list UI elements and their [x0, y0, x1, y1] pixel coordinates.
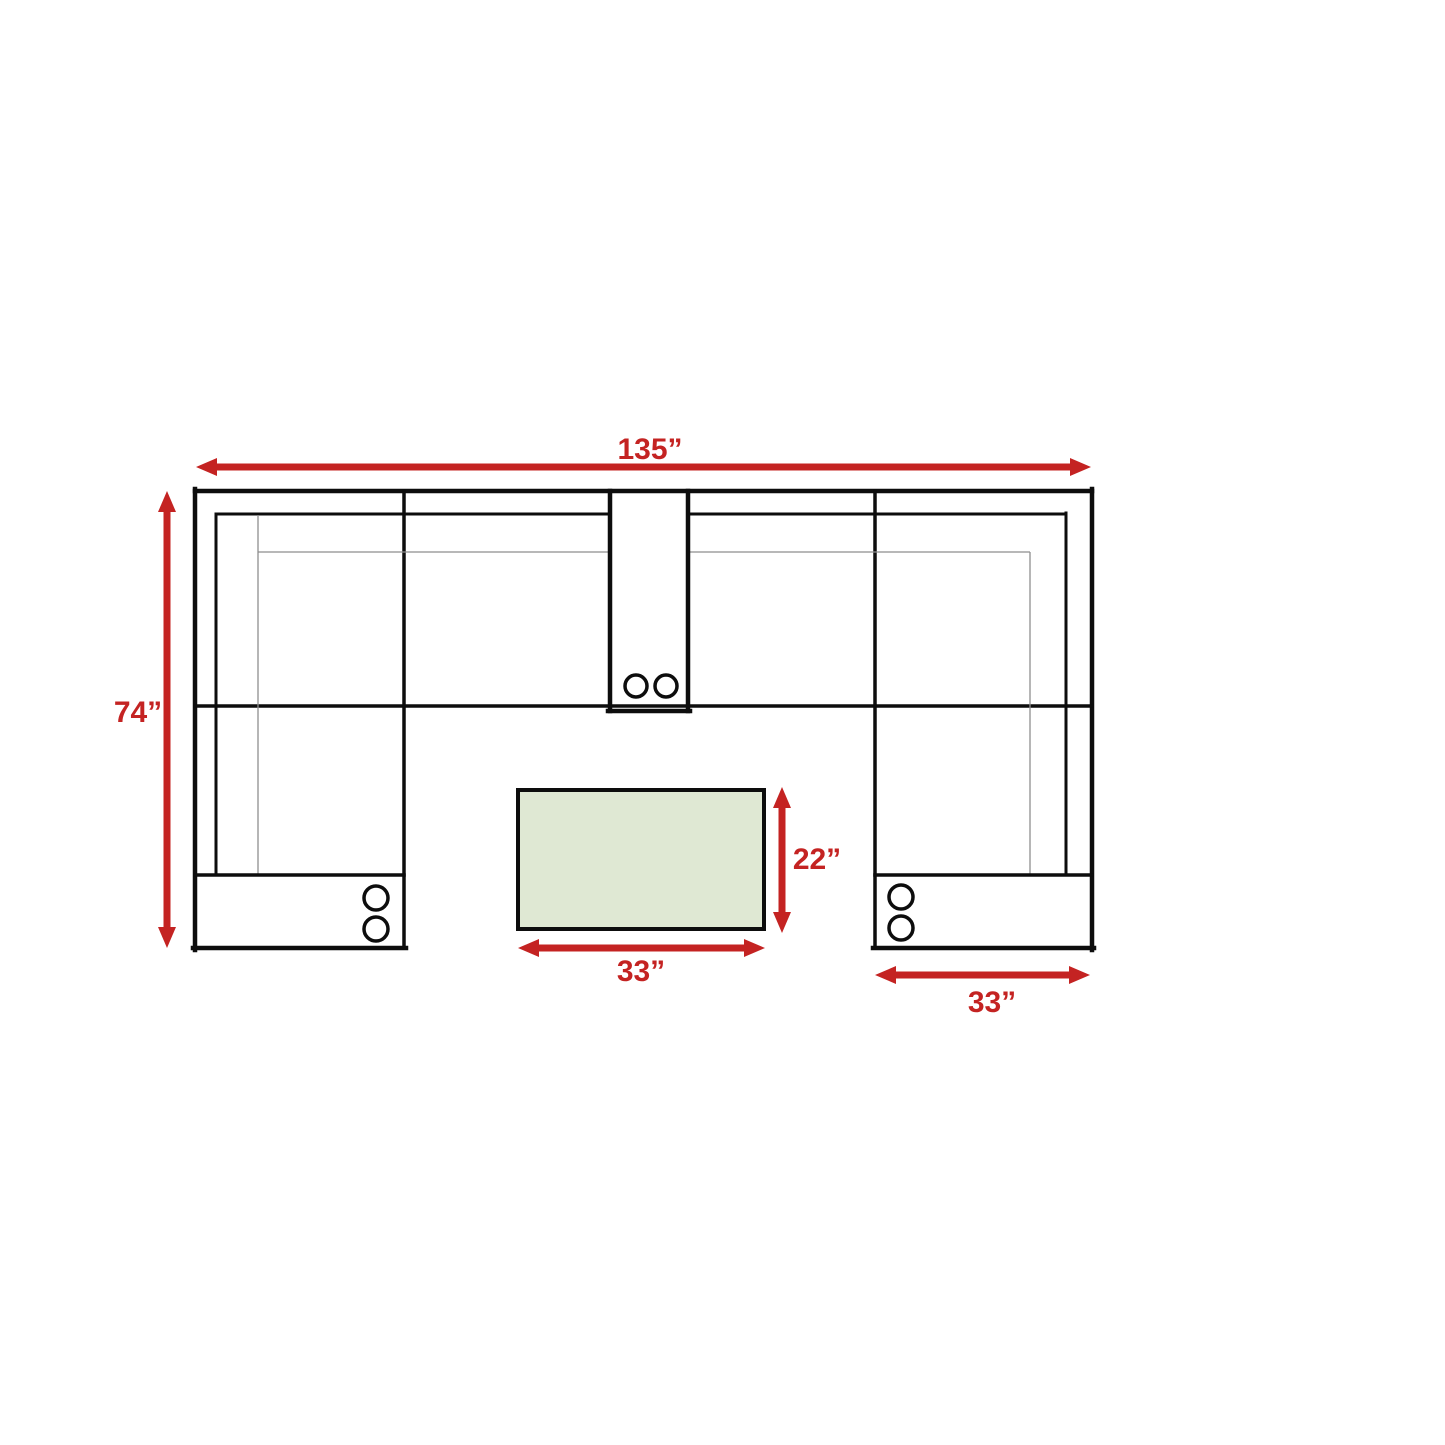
cupholder-icon [364, 886, 388, 910]
arrow-left-head-icon [875, 966, 896, 984]
cupholder-icon [364, 917, 388, 941]
arrow-right-head-icon [744, 939, 765, 957]
right-end-console [873, 875, 1094, 948]
arrow-left-head-icon [518, 939, 539, 957]
sectional-sofa-dimension-diagram: 135” 74” 22” 33” 33” [0, 0, 1445, 1445]
table-depth-dimension: 22” [773, 787, 841, 933]
table-depth-label: 22” [793, 843, 841, 876]
cupholder-icon [655, 675, 677, 697]
arrow-down-head-icon [773, 912, 791, 933]
arrow-left-head-icon [196, 458, 217, 476]
chaise-width-label: 33” [968, 986, 1016, 1019]
diagram-canvas: 135” 74” 22” 33” 33” [0, 0, 1445, 1445]
arrow-up-head-icon [158, 491, 176, 512]
center-console [608, 491, 690, 711]
overall-depth-label: 74” [114, 696, 162, 729]
arrow-up-head-icon [773, 787, 791, 808]
overall-width-label: 135” [617, 433, 682, 466]
cupholder-icon [625, 675, 647, 697]
arrow-down-head-icon [158, 927, 176, 948]
cupholder-icon [889, 885, 913, 909]
cupholder-icon [889, 916, 913, 940]
overall-depth-dimension: 74” [114, 491, 176, 948]
left-end-console [193, 875, 406, 948]
table-width-dimension: 33” [518, 939, 765, 988]
arrow-right-head-icon [1069, 966, 1090, 984]
table-width-label: 33” [617, 955, 665, 988]
coffee-table [518, 790, 764, 929]
arrow-right-head-icon [1070, 458, 1091, 476]
overall-width-dimension: 135” [196, 433, 1091, 476]
chaise-width-dimension: 33” [875, 966, 1090, 1019]
